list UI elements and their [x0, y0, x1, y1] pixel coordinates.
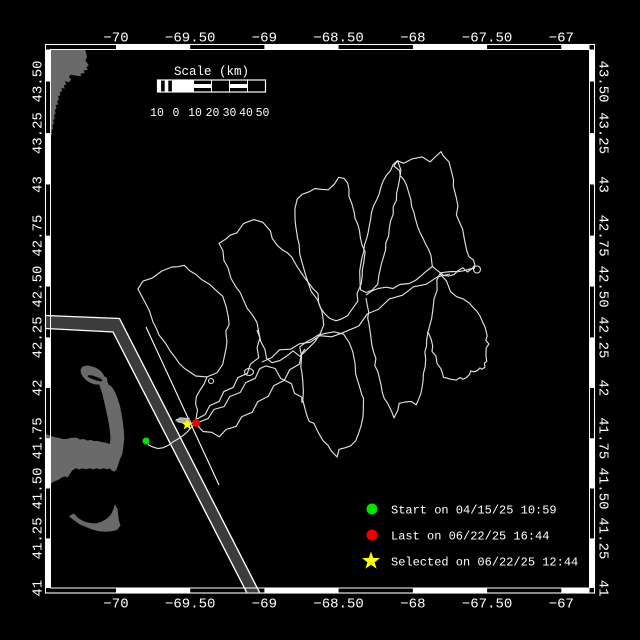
- svg-text:−67.50: −67.50: [462, 31, 512, 47]
- svg-text:−69.50: −69.50: [165, 597, 215, 613]
- svg-text:−70: −70: [103, 597, 128, 613]
- svg-text:42: 42: [595, 379, 611, 396]
- svg-text:10: 10: [150, 107, 164, 120]
- svg-text:41.50: 41.50: [31, 467, 47, 509]
- svg-text:41.50: 41.50: [595, 467, 611, 509]
- svg-text:30: 30: [223, 107, 237, 120]
- svg-text:−69: −69: [252, 31, 277, 47]
- svg-text:Scale (km): Scale (km): [174, 65, 249, 79]
- svg-text:−69: −69: [252, 597, 277, 613]
- svg-text:42.25: 42.25: [595, 316, 611, 358]
- svg-text:−69.50: −69.50: [165, 31, 215, 47]
- svg-text:−68.50: −68.50: [313, 31, 363, 47]
- svg-text:20: 20: [206, 107, 220, 120]
- svg-text:43: 43: [595, 176, 611, 193]
- svg-text:−68: −68: [400, 31, 425, 47]
- svg-text:−67: −67: [549, 31, 574, 47]
- svg-text:43.25: 43.25: [31, 112, 47, 154]
- svg-text:−68.50: −68.50: [313, 597, 363, 613]
- svg-text:Start on 04/15/25 10:59: Start on 04/15/25 10:59: [391, 504, 557, 518]
- svg-text:−70: −70: [103, 31, 128, 47]
- svg-text:43.50: 43.50: [31, 60, 47, 102]
- svg-text:10: 10: [188, 107, 202, 120]
- svg-text:43: 43: [31, 176, 47, 193]
- svg-text:42: 42: [31, 379, 47, 396]
- svg-text:43.50: 43.50: [595, 60, 611, 102]
- svg-text:43.25: 43.25: [595, 112, 611, 154]
- svg-text:Selected on 06/22/25 12:44: Selected on 06/22/25 12:44: [391, 556, 578, 570]
- svg-text:41: 41: [31, 580, 47, 597]
- svg-text:41: 41: [595, 580, 611, 597]
- svg-text:41.25: 41.25: [595, 517, 611, 559]
- svg-text:−67: −67: [549, 597, 574, 613]
- svg-text:−68: −68: [400, 597, 425, 613]
- svg-text:50: 50: [256, 107, 270, 120]
- svg-text:41.75: 41.75: [595, 417, 611, 459]
- svg-text:−67.50: −67.50: [462, 597, 512, 613]
- svg-text:41.75: 41.75: [31, 417, 47, 459]
- svg-text:41.25: 41.25: [31, 517, 47, 559]
- svg-text:42.50: 42.50: [31, 266, 47, 308]
- svg-text:42.75: 42.75: [31, 215, 47, 257]
- svg-text:40: 40: [239, 107, 253, 120]
- svg-text:42.50: 42.50: [595, 266, 611, 308]
- svg-text:Last on 06/22/25 16:44: Last on 06/22/25 16:44: [391, 530, 549, 544]
- svg-text:42.75: 42.75: [595, 215, 611, 257]
- svg-text:42.25: 42.25: [31, 316, 47, 358]
- svg-text:0: 0: [173, 107, 180, 120]
